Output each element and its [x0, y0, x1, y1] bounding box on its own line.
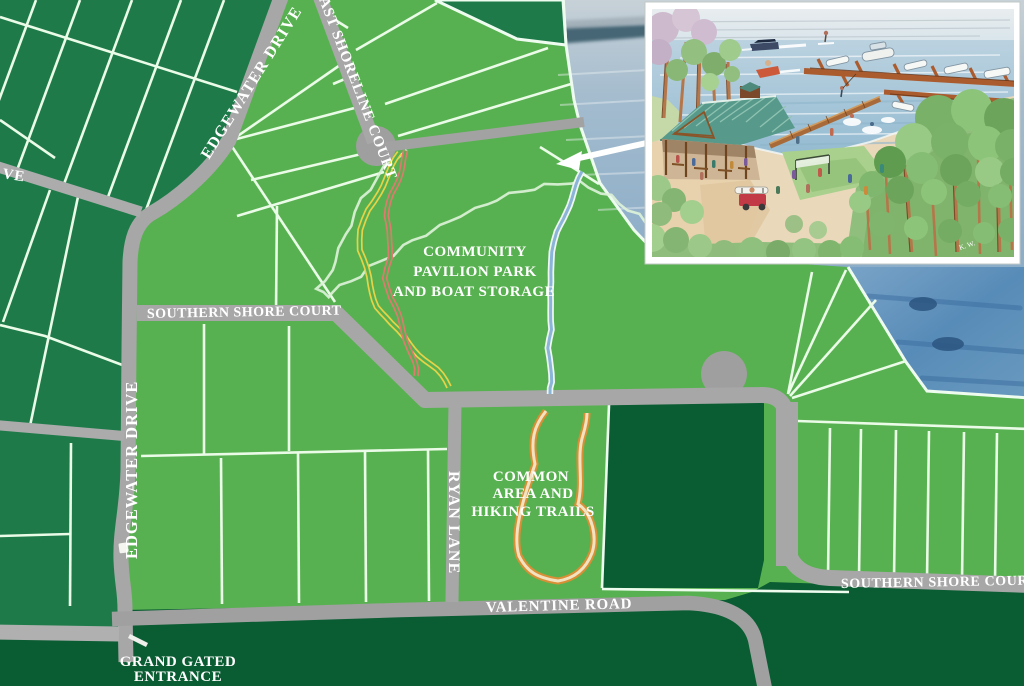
- svg-text:SOUTHERN SHORE COURT: SOUTHERN SHORE COURT: [841, 574, 1024, 592]
- svg-text:PAVILION PARK: PAVILION PARK: [413, 264, 537, 280]
- svg-text:COMMON: COMMON: [493, 469, 569, 485]
- svg-text:AND BOAT STORAGE: AND BOAT STORAGE: [393, 284, 555, 300]
- svg-text:ENTRANCE: ENTRANCE: [134, 669, 222, 685]
- svg-text:HIKING TRAILS: HIKING TRAILS: [471, 504, 594, 520]
- svg-text:RYAN LANE: RYAN LANE: [445, 471, 462, 574]
- svg-text:AREA AND: AREA AND: [492, 486, 573, 502]
- svg-text:GRAND GATED: GRAND GATED: [120, 654, 236, 670]
- svg-text:EDGEWATER DRIVE: EDGEWATER DRIVE: [122, 381, 141, 559]
- svg-text:COMMUNITY: COMMUNITY: [423, 244, 527, 260]
